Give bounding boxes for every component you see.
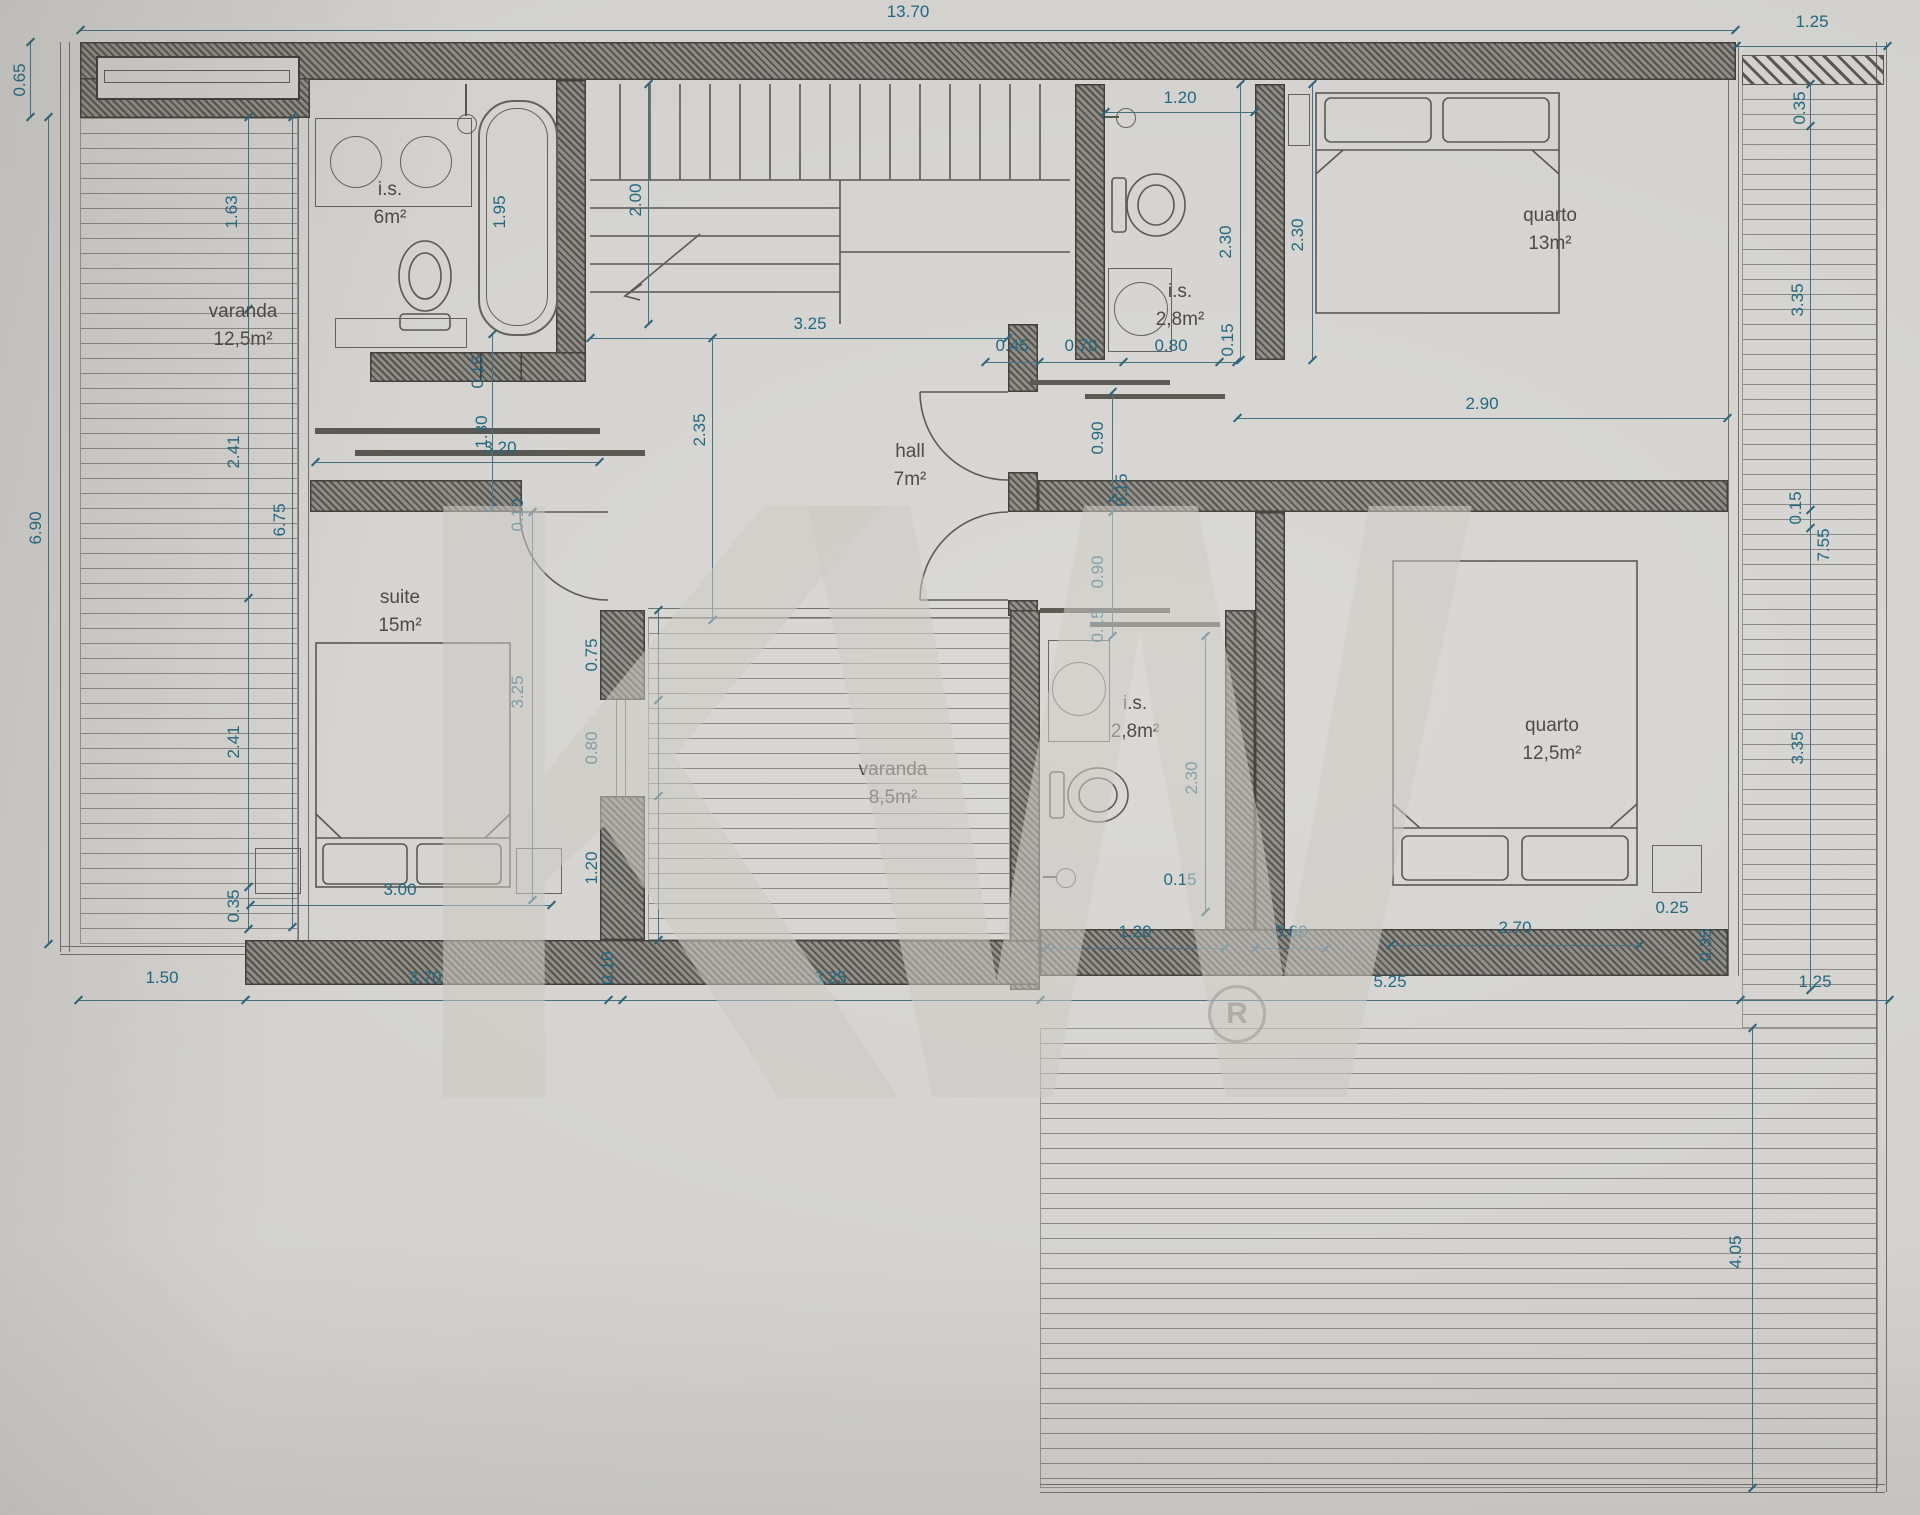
dimline-is28top-230 <box>1240 84 1241 360</box>
dim-1-50: 1.50 <box>145 968 178 988</box>
dim-2-41-b: 2.41 <box>224 725 244 758</box>
dimline-065 <box>30 42 31 117</box>
dim-1-63: 1.63 <box>222 195 242 228</box>
label-quarto125: quarto 12,5m² <box>1522 712 1581 767</box>
dim-2-41-a: 2.41 <box>224 435 244 468</box>
dim-1-20-var85: 1.20 <box>582 851 602 884</box>
dimline-varanda85 <box>658 610 659 940</box>
room-area: 2,8m² <box>1156 306 1205 334</box>
wall-is6-right <box>556 80 586 356</box>
label-is28-top: i.s. 2,8m² <box>1156 278 1205 333</box>
window-top-left-inner <box>104 70 290 83</box>
dimline-is6-015-130 <box>492 334 493 508</box>
dimline-islow-230 <box>1205 636 1206 912</box>
dim-3-25-bottom: 3.25 <box>813 968 846 988</box>
dim-0-75: 0.75 <box>582 638 602 671</box>
label-quarto13: quarto 13m² <box>1523 202 1577 257</box>
room-name: varanda <box>859 756 928 784</box>
dimline-690 <box>48 117 49 944</box>
dimline-235 <box>712 338 713 620</box>
dim-0-15-row: 0.15 <box>1218 323 1238 356</box>
dimline-suite-300 <box>250 905 552 906</box>
faucet-is28top-stem <box>1105 116 1119 118</box>
dim-2-00: 2.00 <box>626 183 646 216</box>
dim-2-90: 2.90 <box>1465 394 1498 414</box>
glazing-varanda-center-top <box>648 608 1010 618</box>
deck-varanda-center <box>648 618 1010 940</box>
dim-3-35-strip-b: 3.35 <box>1788 731 1808 764</box>
window-varanda-center <box>616 700 626 796</box>
boundary-right <box>1876 42 1887 1492</box>
dimline-320 <box>315 462 600 463</box>
door-hall-lower <box>916 508 1012 604</box>
label-is28-low: i.s. 2,8m² <box>1111 690 1160 745</box>
wall-islow-right <box>1225 610 1255 976</box>
dim-7-55: 7.55 <box>1814 528 1834 561</box>
wall-quarto-right <box>1728 42 1739 976</box>
faucet-is6 <box>457 114 477 134</box>
room-name: i.s. <box>374 176 407 204</box>
dimline-varanda-left <box>248 117 249 929</box>
pillar-varanda85-b <box>600 796 645 940</box>
dim-0-80-var85: 0.80 <box>582 731 602 764</box>
dimline-hall-row <box>985 362 1237 363</box>
dim-1-20-islow: 1.20 <box>1118 922 1151 942</box>
boundary-terrace-bottom <box>1040 1484 1885 1493</box>
faucet-is28top <box>1116 108 1136 128</box>
room-name: quarto <box>1522 712 1581 740</box>
dim-1-25-top: 1.25 <box>1795 12 1828 32</box>
dim-4-05: 4.05 <box>1726 1235 1746 1268</box>
room-area: 15m² <box>378 612 421 640</box>
dim-3-25-suite: 3.25 <box>508 675 528 708</box>
dim-5-25: 5.25 <box>1373 972 1406 992</box>
room-name: varanda <box>209 298 278 326</box>
dimline-top <box>80 30 1736 31</box>
dimline-405 <box>1752 1028 1753 1488</box>
dimline-islow-120 <box>1045 948 1225 949</box>
room-area: 8,5m² <box>859 784 928 812</box>
dim-0-80: 0.80 <box>1154 336 1187 356</box>
dim-0-60: 0.60 <box>1274 922 1307 942</box>
label-suite: suite 15m² <box>378 584 421 639</box>
dim-6-90: 6.90 <box>26 511 46 544</box>
dim-0-15-islow: 0.15 <box>1163 870 1196 890</box>
dimline-right-strip <box>1810 84 1811 990</box>
wall-is28top-right <box>1255 84 1285 360</box>
room-name: i.s. <box>1111 690 1160 718</box>
dim-0-35-left: 0.35 <box>224 889 244 922</box>
dim-0-90-upper: 0.90 <box>1088 421 1108 454</box>
dim-0-90-lower: 0.90 <box>1088 555 1108 588</box>
sliding-door-corridor-a <box>1030 380 1170 385</box>
dim-3-70: 3.70 <box>408 968 441 988</box>
boundary-left-bottom <box>60 946 246 955</box>
label-hall: hall 7m² <box>894 438 927 493</box>
deck-varanda-left <box>80 118 298 944</box>
dimline-bottom <box>78 1000 1890 1001</box>
sink-is6-right <box>400 136 452 188</box>
sliding-door-corridor-b <box>1085 394 1225 399</box>
room-name: quarto <box>1523 202 1577 230</box>
dim-0-10-suite: 0.10 <box>508 498 528 531</box>
dim-0-70: 0.70 <box>1064 336 1097 356</box>
faucet-islow <box>1056 868 1076 888</box>
dimline-corridor-lower <box>1112 512 1113 636</box>
dim-0-15-lower: 0.15 <box>1088 609 1108 642</box>
room-name: hall <box>894 438 927 466</box>
nightstand-quarto125 <box>1652 845 1702 893</box>
dim-1-95: 1.95 <box>490 195 510 228</box>
dim-3-35-strip-a: 3.35 <box>1788 283 1808 316</box>
dim-0-45: 0.45 <box>995 336 1028 356</box>
sliding-door-islow-b <box>1090 622 1220 627</box>
dim-0-65: 0.65 <box>10 63 30 96</box>
nightstand-suite-left <box>255 848 301 894</box>
room-name: i.s. <box>1156 278 1205 306</box>
faucet-islow-stem <box>1043 876 1057 878</box>
dimline-stairs-325 <box>590 338 1008 339</box>
wall-top-main <box>80 42 1736 80</box>
dim-0-10-bottom: 0.10 <box>598 951 618 984</box>
dim-0-15-upper: 0.15 <box>1112 473 1132 506</box>
toilet-is28top <box>1110 162 1188 248</box>
label-varanda-left: varanda 12,5m² <box>209 298 278 353</box>
wall-is28top-left <box>1075 84 1105 360</box>
label-varanda85: varanda 8,5m² <box>859 756 928 811</box>
pillar-varanda85-a <box>600 610 645 700</box>
toilet-islow <box>1048 760 1132 830</box>
dimline-top-right <box>1736 46 1888 47</box>
dimline-quarto13-230 <box>1312 84 1313 360</box>
wall-hall-junction <box>1008 472 1038 512</box>
dimline-270 <box>1390 945 1640 946</box>
room-area: 7m² <box>894 466 927 494</box>
wall-varanda85-right <box>1010 610 1040 990</box>
room-area: 6m² <box>374 204 407 232</box>
room-area: 12,5m² <box>209 326 278 354</box>
dim-6-75: 6.75 <box>270 503 290 536</box>
dim-0-15-is6: 0.15 <box>468 355 488 388</box>
dim-0-35-strip: 0.35 <box>1790 91 1810 124</box>
dim-0-15-strip: 0.15 <box>1786 491 1806 524</box>
room-name: suite <box>378 584 421 612</box>
nightstand-suite-right <box>516 848 562 894</box>
dimline-quarto13-290 <box>1237 418 1728 419</box>
dim-1-20-is28top: 1.20 <box>1163 88 1196 108</box>
room-area: 13m² <box>1523 230 1577 258</box>
sink-islow <box>1052 662 1106 716</box>
dim-2-30-is28top: 2.30 <box>1216 225 1236 258</box>
wall-mid-right <box>1038 480 1728 512</box>
wall-bottom-left <box>245 940 1040 985</box>
faucet-is6-stem <box>465 84 467 116</box>
dimline-stairs-200 <box>648 84 649 324</box>
room-area: 2,8m² <box>1111 718 1160 746</box>
door-suite <box>516 508 612 604</box>
glazing-varanda-left <box>298 118 309 944</box>
bed-suite <box>315 642 511 888</box>
cabinet-is6 <box>335 318 467 348</box>
dim-1-25-bottom: 1.25 <box>1798 972 1831 992</box>
dimline-is28top-120 <box>1105 112 1255 113</box>
door-hall-upper <box>916 388 1012 484</box>
floor-plan-canvas: 13.70 1.25 0.65 6.90 1.63 2.41 2.41 0.35… <box>0 0 1920 1515</box>
dim-13-70: 13.70 <box>887 2 930 22</box>
dim-3-25-stairs: 3.25 <box>793 314 826 334</box>
boundary-left <box>60 42 70 952</box>
dim-2-30-islow: 2.30 <box>1182 761 1202 794</box>
label-is6: i.s. 6m² <box>374 176 407 231</box>
room-area: 12,5m² <box>1522 740 1581 768</box>
wall-quarto125-left <box>1255 512 1285 976</box>
dim-2-70: 2.70 <box>1498 918 1531 938</box>
dimline-suite-325 <box>532 512 533 900</box>
bed-quarto125 <box>1392 560 1638 886</box>
dim-3-00: 3.00 <box>383 880 416 900</box>
sliding-door-suite-a <box>315 428 600 434</box>
dim-2-35: 2.35 <box>690 413 710 446</box>
dim-2-30-quarto13: 2.30 <box>1288 218 1308 251</box>
dim-0-25: 0.25 <box>1655 898 1688 918</box>
dimline-060 <box>1255 948 1327 949</box>
dimline-675 <box>292 117 293 927</box>
dim-0-35-bottomright: 0.35 <box>1696 928 1716 961</box>
nightstand-quarto13 <box>1288 94 1310 146</box>
dim-3-20: 3.20 <box>483 438 516 458</box>
staircase <box>590 84 1070 324</box>
